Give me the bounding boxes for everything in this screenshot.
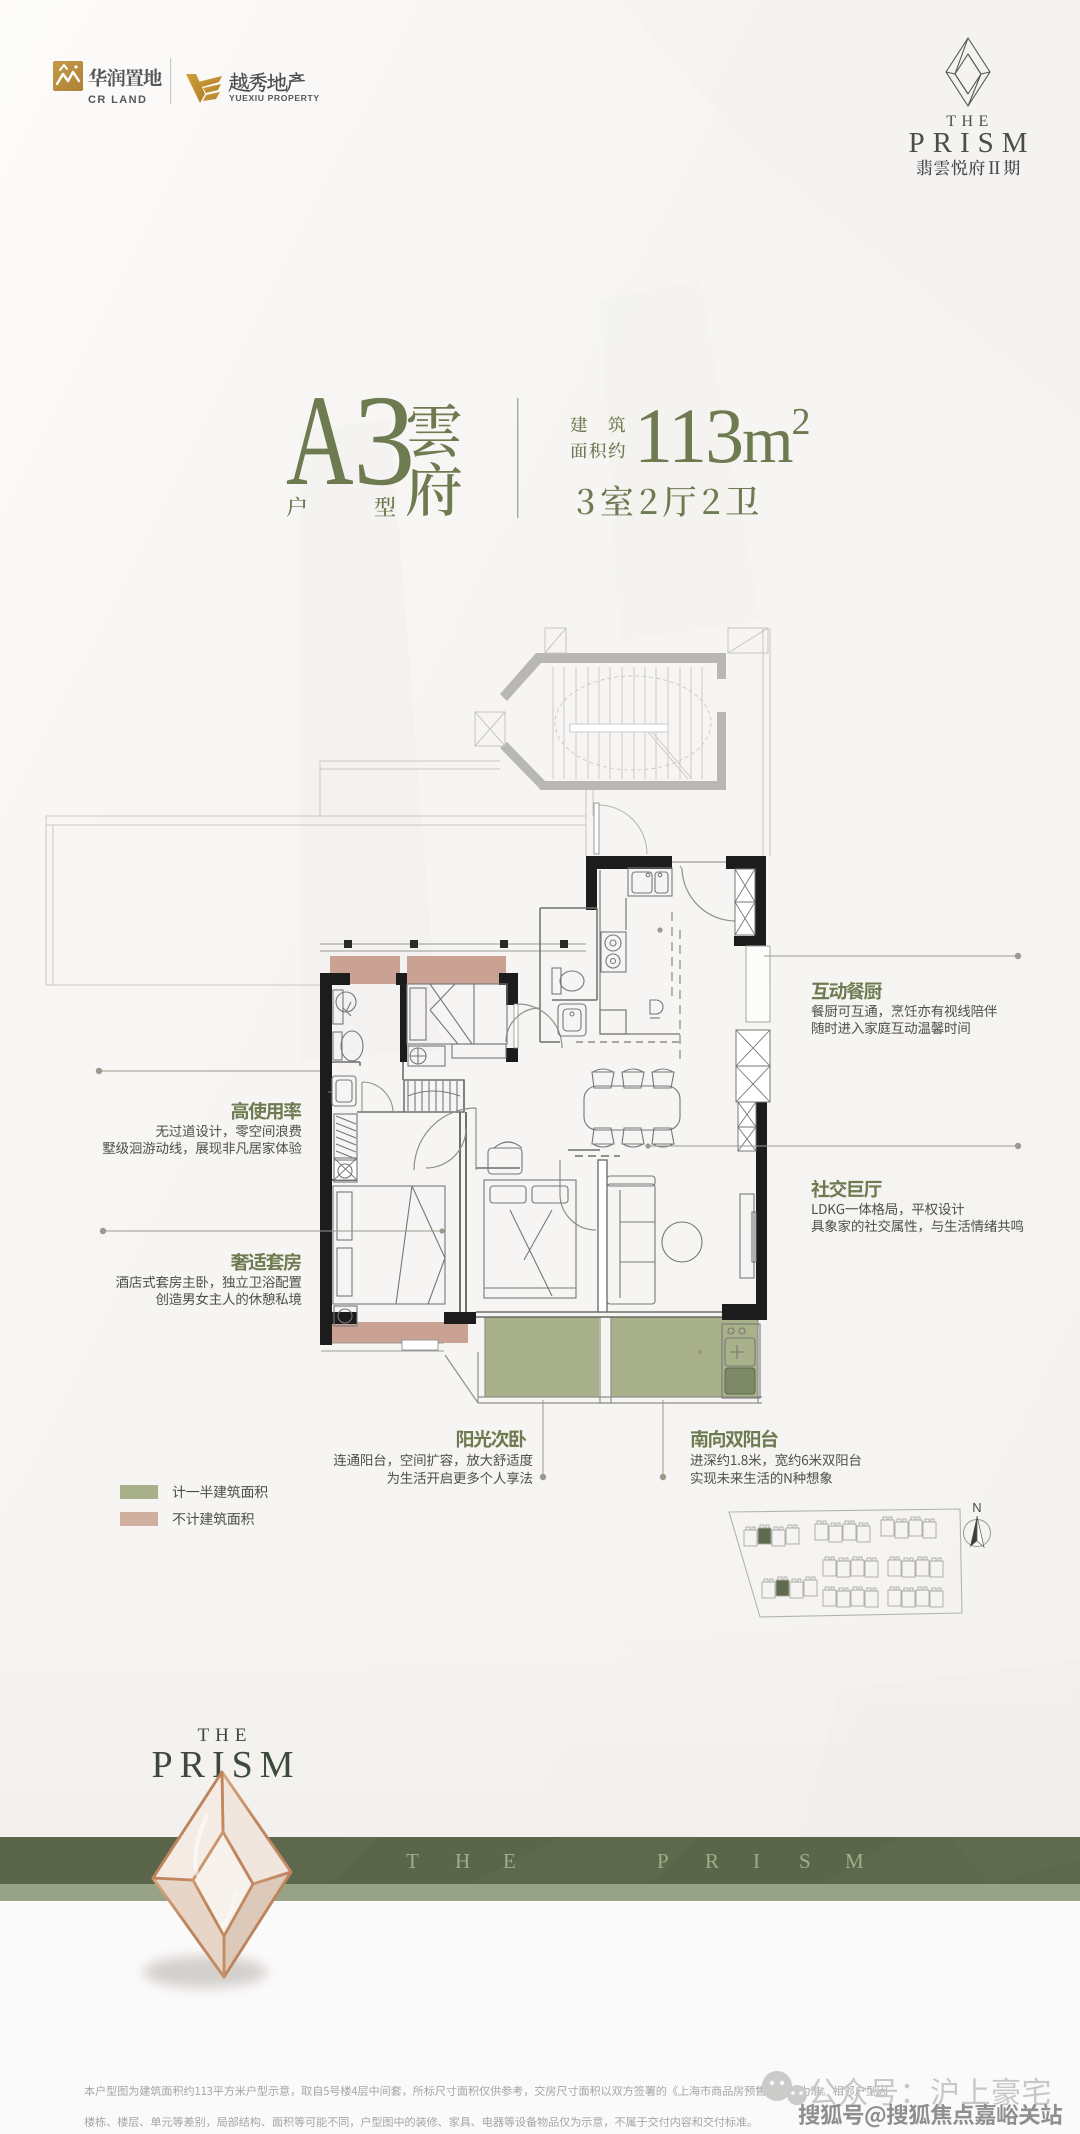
svg-text:N: N	[972, 1500, 981, 1515]
svg-text:CR LAND: CR LAND	[88, 94, 147, 106]
svg-text:I: I	[753, 1849, 760, 1873]
svg-text:113m2: 113m2	[634, 392, 808, 479]
svg-text:H: H	[455, 1849, 470, 1873]
svg-text:PRISM: PRISM	[908, 127, 1035, 159]
svg-text:3: 3	[353, 368, 415, 513]
svg-text:R: R	[705, 1849, 719, 1873]
svg-text:E: E	[503, 1849, 516, 1873]
svg-text:T: T	[406, 1849, 419, 1873]
svg-text:P: P	[657, 1849, 669, 1873]
svg-text:YUEXIU PROPERTY: YUEXIU PROPERTY	[229, 93, 320, 103]
svg-text:A: A	[286, 368, 354, 513]
svg-text:S: S	[799, 1849, 811, 1873]
svg-text:M: M	[845, 1849, 864, 1873]
svg-text:THE: THE	[198, 1725, 253, 1746]
